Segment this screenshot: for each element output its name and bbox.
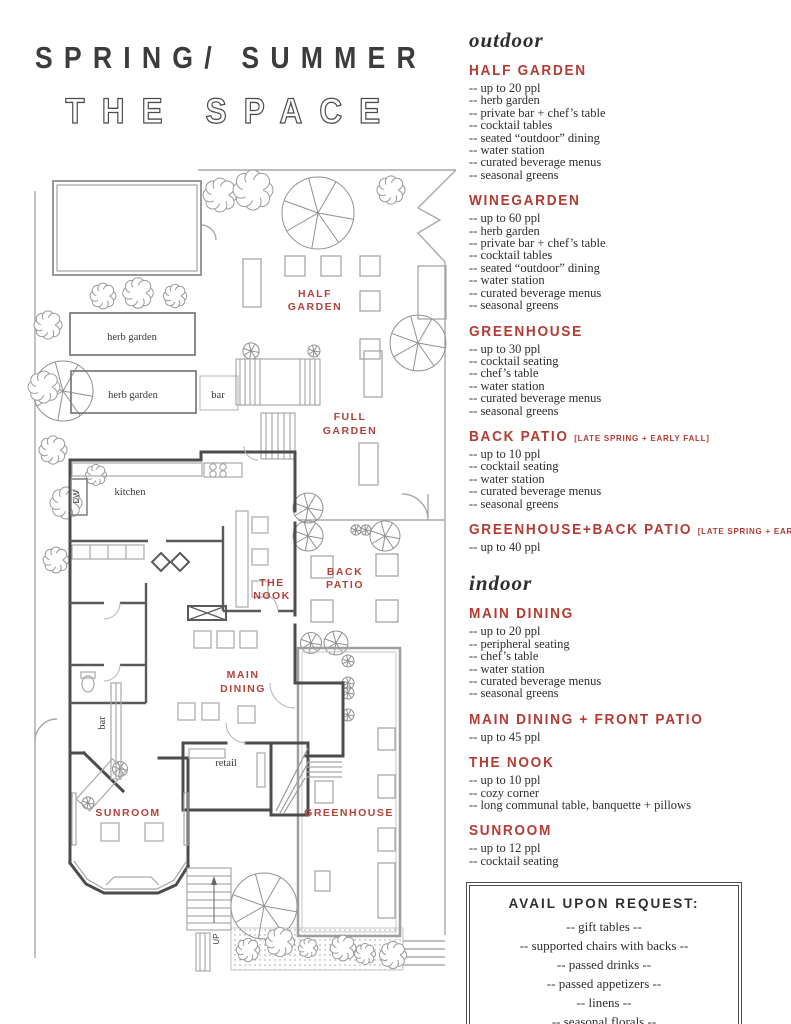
section-title: GREENHOUSE — [469, 324, 583, 340]
main-dining-label: MAIN — [227, 669, 260, 681]
room-labels-black: herb garden herb garden bar kitchen reta… — [72, 332, 237, 945]
stipple-garden — [231, 927, 407, 970]
list-item: -- chef’s table — [469, 367, 785, 379]
section-note: [LATE SPRING + EARLY FALL] — [574, 433, 710, 443]
outbuilding — [53, 181, 201, 275]
up-label: UP — [212, 933, 221, 944]
half-garden-label-2: GARDEN — [288, 301, 343, 313]
list-item: -- long communal table, banquette + pill… — [469, 799, 785, 811]
page-title-space: THE SPACE — [65, 92, 397, 132]
section-winegarden: WINEGARDEN -- up to 60 ppl -- herb garde… — [469, 193, 785, 311]
greenhouse-label: GREENHOUSE — [304, 807, 394, 819]
herb-garden-1-label: herb garden — [107, 332, 158, 343]
list-item: -- seasonal greens — [469, 405, 785, 417]
list-item: -- cocktail tables — [469, 249, 785, 261]
back-patio-label-2: PATIO — [326, 579, 364, 591]
main-dining-label-2: DINING — [220, 683, 266, 695]
section-the-nook: THE NOOK -- up to 10 ppl -- cozy corner … — [469, 755, 785, 811]
avail-item: -- seasonal florals -- — [476, 1012, 732, 1024]
info-column: outdoor HALF GARDEN -- up to 20 ppl -- h… — [469, 28, 785, 1024]
dishwasher-label: DW — [72, 490, 81, 504]
list-item: -- up to 12 ppl — [469, 842, 785, 854]
rear-stairs — [187, 868, 231, 971]
list-item: -- up to 45 ppl — [469, 731, 785, 743]
section-back-patio: BACK PATIO [LATE SPRING + EARLY FALL] --… — [469, 429, 785, 510]
side-bar-label: bar — [97, 716, 108, 730]
list-item: -- cocktail tables — [469, 119, 785, 131]
section-sunroom: SUNROOM -- up to 12 ppl -- cocktail seat… — [469, 823, 785, 867]
retail-label: retail — [215, 758, 237, 769]
avail-item: -- gift tables -- — [476, 917, 732, 936]
list-item: -- seasonal greens — [469, 498, 785, 510]
list-item: -- water station — [469, 274, 785, 286]
section-title: GREENHOUSE+BACK PATIO — [469, 522, 692, 538]
bar-label: bar — [211, 390, 225, 401]
section-half-garden: HALF GARDEN -- up to 20 ppl -- herb gard… — [469, 63, 785, 181]
title-block: SPRING/ SUMMER THE SPACE — [0, 40, 462, 132]
section-title: MAIN DINING — [469, 606, 574, 622]
indoor-heading: indoor — [469, 571, 785, 596]
herb-garden-2-label: herb garden — [108, 390, 159, 401]
list-item: -- up to 10 ppl — [469, 774, 785, 786]
list-item: -- up to 40 ppl — [469, 541, 785, 553]
sunroom-label: SUNROOM — [95, 807, 160, 819]
section-greenhouse-back-patio: GREENHOUSE+BACK PATIO [LATE SPRING + EAR… — [469, 522, 785, 553]
section-title: BACK PATIO — [469, 429, 569, 445]
floor-plan: HALF GARDEN FULL GARDEN THE NOOK BACK PA… — [8, 163, 470, 1023]
section-greenhouse: GREENHOUSE -- up to 30 ppl -- cocktail s… — [469, 324, 785, 417]
avail-item: -- linens -- — [476, 993, 732, 1012]
list-item: -- curated beverage menus — [469, 485, 785, 497]
interior-walls — [70, 526, 295, 703]
page: SPRING/ SUMMER THE SPACE — [0, 0, 791, 1024]
list-item: -- cocktail seating — [469, 855, 785, 867]
avail-item: -- passed drinks -- — [476, 955, 732, 974]
list-item: -- curated beverage menus — [469, 392, 785, 404]
section-note: [LATE SPRING + EARLY FALL] — [698, 526, 791, 536]
list-item: -- cocktail seating — [469, 460, 785, 472]
list-item: -- herb garden — [469, 94, 785, 106]
nook-label: THE — [259, 577, 285, 589]
section-title: MAIN DINING + FRONT PATIO — [469, 712, 704, 728]
page-title-season: SPRING/ SUMMER — [35, 40, 427, 76]
full-garden-label: FULL — [334, 411, 367, 423]
outdoor-heading: outdoor — [469, 28, 785, 53]
back-patio-label: BACK — [327, 566, 363, 578]
list-item: -- up to 20 ppl — [469, 625, 785, 637]
nook-label-2: NOOK — [253, 590, 291, 602]
avail-item: -- supported chairs with backs -- — [476, 936, 732, 955]
list-item: -- curated beverage menus — [469, 156, 785, 168]
list-item: -- seasonal greens — [469, 299, 785, 311]
full-garden-label-2: GARDEN — [323, 425, 378, 437]
section-title: SUNROOM — [469, 823, 552, 839]
section-title: THE NOOK — [469, 755, 554, 771]
avail-upon-request-box: AVAIL UPON REQUEST: -- gift tables -- --… — [469, 885, 739, 1024]
kitchen-label: kitchen — [115, 487, 147, 498]
interior-fixtures — [71, 463, 342, 889]
section-title: WINEGARDEN — [469, 193, 581, 209]
list-item: -- chef’s table — [469, 650, 785, 662]
section-title: HALF GARDEN — [469, 63, 587, 79]
avail-item: -- passed appetizers -- — [476, 974, 732, 993]
half-garden-label: HALF — [298, 288, 332, 300]
list-item: -- seasonal greens — [469, 687, 785, 699]
list-item: -- seasonal greens — [469, 169, 785, 181]
list-item: -- up to 60 ppl — [469, 212, 785, 224]
section-main-dining: MAIN DINING -- up to 20 ppl -- periphera… — [469, 606, 785, 699]
section-main-dining-front-patio: MAIN DINING + FRONT PATIO -- up to 45 pp… — [469, 712, 785, 743]
garden-deck-stairs — [236, 359, 320, 459]
avail-box-title: AVAIL UPON REQUEST: — [476, 896, 732, 911]
